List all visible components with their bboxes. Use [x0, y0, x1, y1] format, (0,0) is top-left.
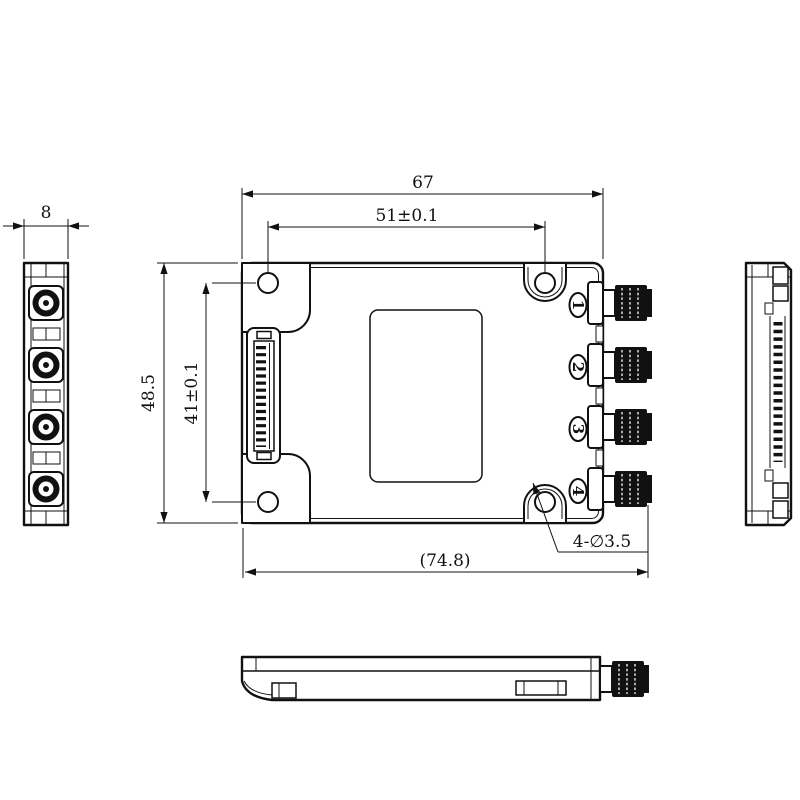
- top-view-main: 1 2 3 4: [242, 263, 652, 523]
- sma-port-face-3: [29, 410, 63, 444]
- port-label-3: 3: [569, 424, 587, 434]
- dim-text-body-width: 67: [412, 173, 434, 193]
- mount-hole-top-right: [535, 273, 555, 293]
- mount-hole-top-left: [258, 273, 278, 293]
- mount-pad-top-left: [242, 263, 310, 332]
- dim-text-hole-pitch-v: 41±0.1: [182, 362, 202, 425]
- dim-text-hole-callout: 4-∅3.5: [573, 532, 631, 552]
- sma-port-face-1: [29, 286, 63, 320]
- dim-text-hole-pitch-h: 51±0.1: [376, 206, 439, 226]
- end-view-left: [24, 263, 68, 525]
- spacer-block: [33, 452, 60, 464]
- sma-port-face-2: [29, 348, 63, 382]
- sma-port-face-4: [29, 472, 63, 506]
- mount-hole-bottom-right: [535, 492, 555, 512]
- sma-plug-side: [600, 661, 649, 697]
- board-connector: [247, 328, 280, 463]
- dim-text-overall-width: (74.8): [419, 551, 470, 571]
- spacer-block: [33, 390, 60, 402]
- port-label-2: 2: [569, 362, 587, 372]
- technical-drawing: 8: [0, 0, 800, 800]
- side-view-bottom: [242, 657, 649, 700]
- mount-pad-bottom-left: [242, 454, 310, 523]
- port-label-4: 4: [569, 486, 587, 496]
- port-label-1: 1: [569, 300, 587, 310]
- mount-hole-bottom-left: [258, 492, 278, 512]
- side-view-right: [746, 263, 791, 525]
- dimension-thickness-8: 8: [3, 203, 89, 259]
- spacer-block: [33, 328, 60, 340]
- drawing-sheet: 8: [0, 0, 800, 800]
- dim-text-body-height: 48.5: [139, 374, 159, 412]
- shield-outline: [370, 310, 482, 482]
- dim-text-thickness: 8: [41, 203, 52, 223]
